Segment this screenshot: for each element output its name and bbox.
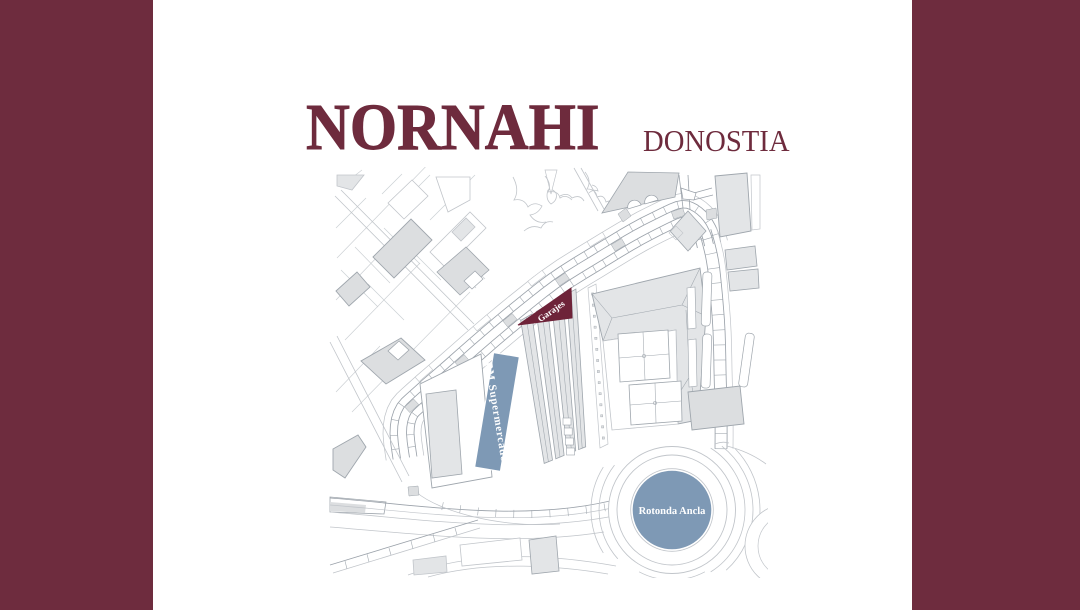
svg-text:Rotonda Ancla: Rotonda Ancla [639, 506, 707, 517]
